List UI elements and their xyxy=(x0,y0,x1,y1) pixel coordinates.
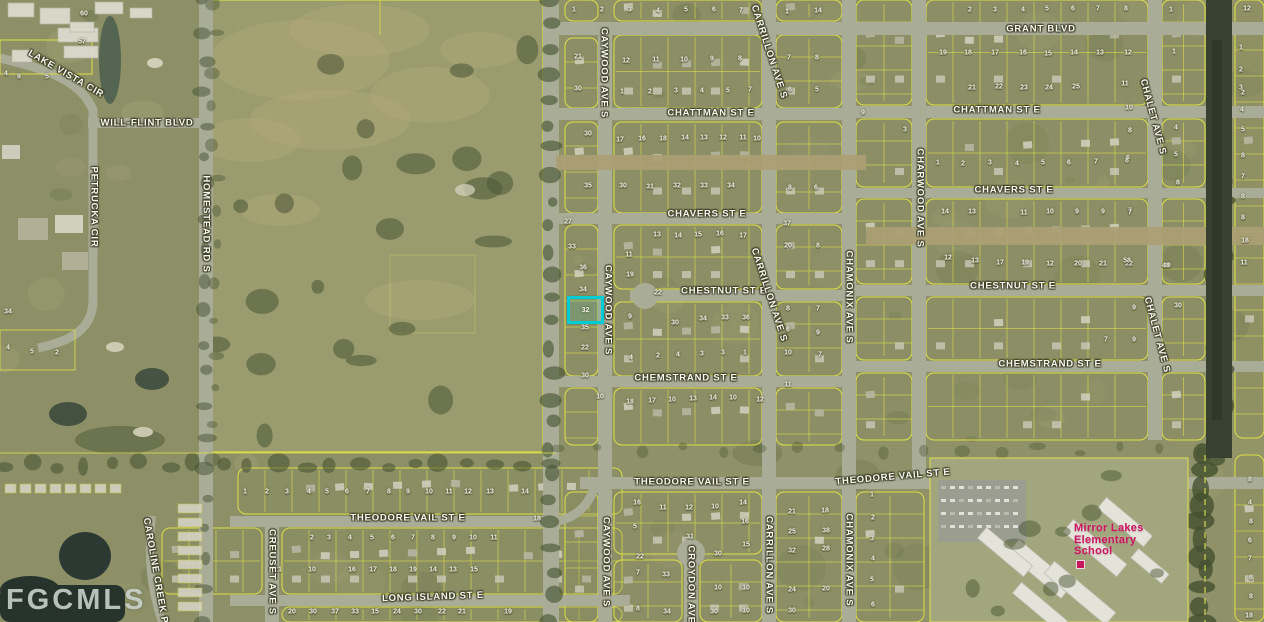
aerial-map-view[interactable]: 2345678112123456711419181716151413121211… xyxy=(0,0,1264,622)
subject-parcel-highlight[interactable]: 32 xyxy=(567,296,604,324)
school-label-line: School xyxy=(1074,546,1144,558)
school-poi-label: Mirror LakesElementarySchool xyxy=(1074,523,1144,558)
school-label-line: Mirror Lakes xyxy=(1074,523,1144,535)
subject-parcel-number: 32 xyxy=(582,307,590,314)
school-icon xyxy=(1076,560,1085,569)
mls-watermark: FGCMLS xyxy=(6,584,146,617)
